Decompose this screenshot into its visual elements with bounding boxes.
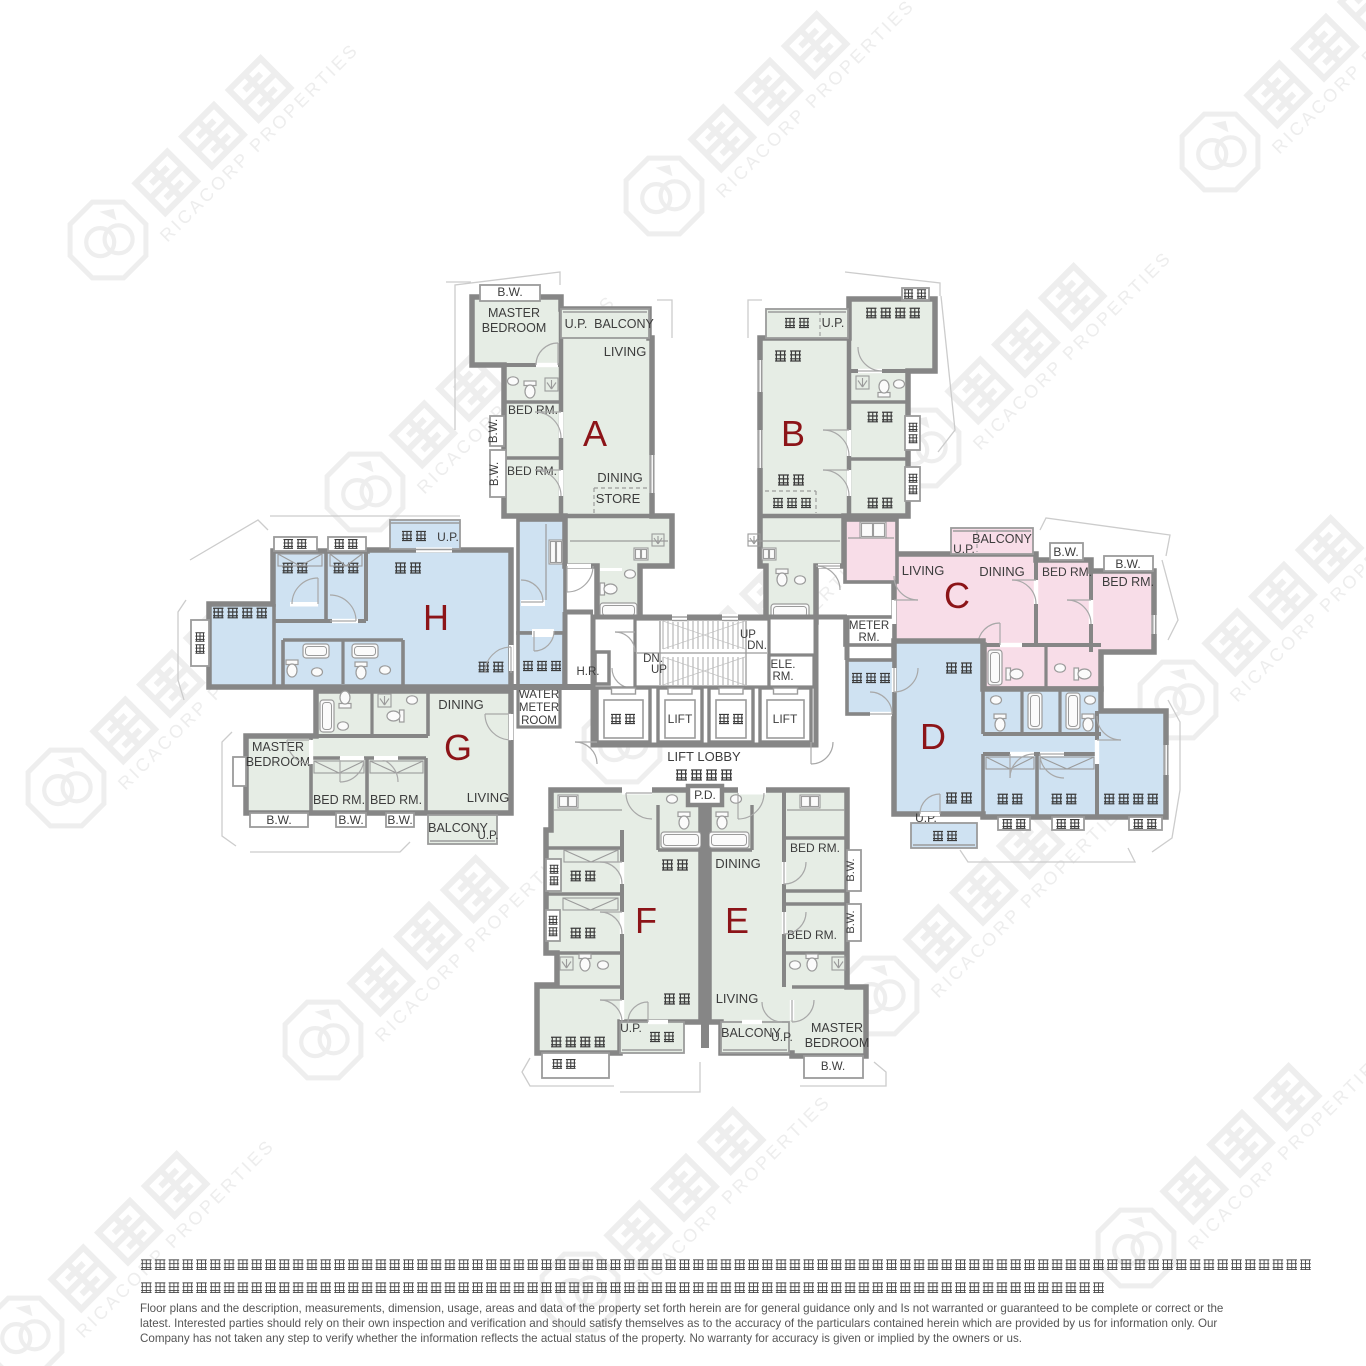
svg-text:B.W.: B.W. [266, 813, 291, 827]
svg-text:MASTER: MASTER [488, 306, 540, 320]
svg-text:WATER: WATER [519, 689, 559, 701]
svg-text:BED RM.: BED RM. [313, 793, 365, 807]
svg-text:BALCONY: BALCONY [972, 532, 1032, 546]
svg-text:DINING: DINING [438, 697, 484, 712]
svg-text:METER: METER [519, 702, 559, 714]
svg-text:U.P.: U.P. [771, 1030, 793, 1044]
svg-text:B.W.: B.W. [1053, 545, 1078, 559]
svg-text:DINING: DINING [597, 470, 643, 485]
svg-text:Company has not taken any step: Company has not taken any step to verify… [140, 1332, 1022, 1345]
svg-text:BEDROOM: BEDROOM [805, 1036, 870, 1050]
svg-text:G: G [444, 727, 472, 768]
svg-text:B.W.: B.W. [845, 910, 857, 933]
svg-text:DINING: DINING [979, 564, 1025, 579]
svg-text:BED RM.: BED RM. [1042, 565, 1092, 579]
svg-text:BED RM.: BED RM. [790, 841, 840, 855]
svg-text:LIVING: LIVING [716, 991, 759, 1006]
svg-text:BED RM.: BED RM. [1102, 575, 1154, 589]
svg-text:Floor plans and the descriptio: Floor plans and the description, measure… [140, 1302, 1223, 1315]
svg-text:B.W.: B.W. [338, 813, 363, 827]
svg-text:ELE.: ELE. [771, 659, 796, 671]
svg-text:B.W.: B.W. [845, 858, 857, 881]
svg-text:H.R.: H.R. [577, 666, 600, 678]
svg-text:MASTER: MASTER [811, 1021, 863, 1035]
svg-text:B.W.: B.W. [1115, 557, 1140, 571]
svg-text:B.W.: B.W. [821, 1061, 845, 1073]
svg-text:B.W.: B.W. [488, 419, 500, 443]
svg-text:LIFT: LIFT [668, 712, 693, 726]
svg-text:BEDROOM: BEDROOM [482, 321, 547, 335]
svg-text:U.P.: U.P. [478, 830, 499, 842]
svg-text:BED RM.: BED RM. [370, 793, 422, 807]
svg-text:STORE: STORE [596, 491, 641, 506]
svg-text:B.W.: B.W. [497, 285, 522, 299]
svg-text:U.P.: U.P. [620, 1021, 642, 1035]
svg-text:METER: METER [849, 620, 889, 632]
svg-text:U.P.: U.P. [437, 530, 459, 544]
svg-text:LIFT LOBBY: LIFT LOBBY [667, 749, 741, 764]
svg-text:F: F [635, 900, 657, 941]
svg-text:P.D.: P.D. [694, 788, 716, 802]
svg-text:LIVING: LIVING [604, 344, 647, 359]
svg-text:H: H [423, 597, 449, 638]
svg-text:D: D [920, 716, 946, 757]
svg-text:LIFT: LIFT [773, 712, 798, 726]
svg-text:U.P.: U.P. [565, 317, 588, 331]
svg-text:A: A [583, 413, 607, 454]
svg-text:U.P.: U.P. [822, 316, 845, 330]
svg-text:B: B [781, 413, 805, 454]
svg-text:ROOM: ROOM [521, 715, 557, 727]
svg-text:C: C [944, 575, 970, 616]
svg-text:LIVING: LIVING [902, 563, 945, 578]
svg-text:RM.: RM. [772, 671, 793, 683]
svg-text:latest. Interested parties sho: latest. Interested parties should rely o… [140, 1317, 1217, 1330]
svg-text:LIVING: LIVING [467, 790, 510, 805]
svg-text:DINING: DINING [715, 856, 761, 871]
svg-text:UP: UP [651, 664, 667, 676]
svg-text:DN.: DN. [747, 640, 767, 652]
svg-text:RM.: RM. [858, 632, 879, 644]
svg-text:B.W.: B.W. [387, 813, 412, 827]
svg-text:BALCONY: BALCONY [594, 317, 654, 331]
svg-text:B.W.: B.W. [489, 462, 501, 486]
svg-text:E: E [725, 900, 749, 941]
